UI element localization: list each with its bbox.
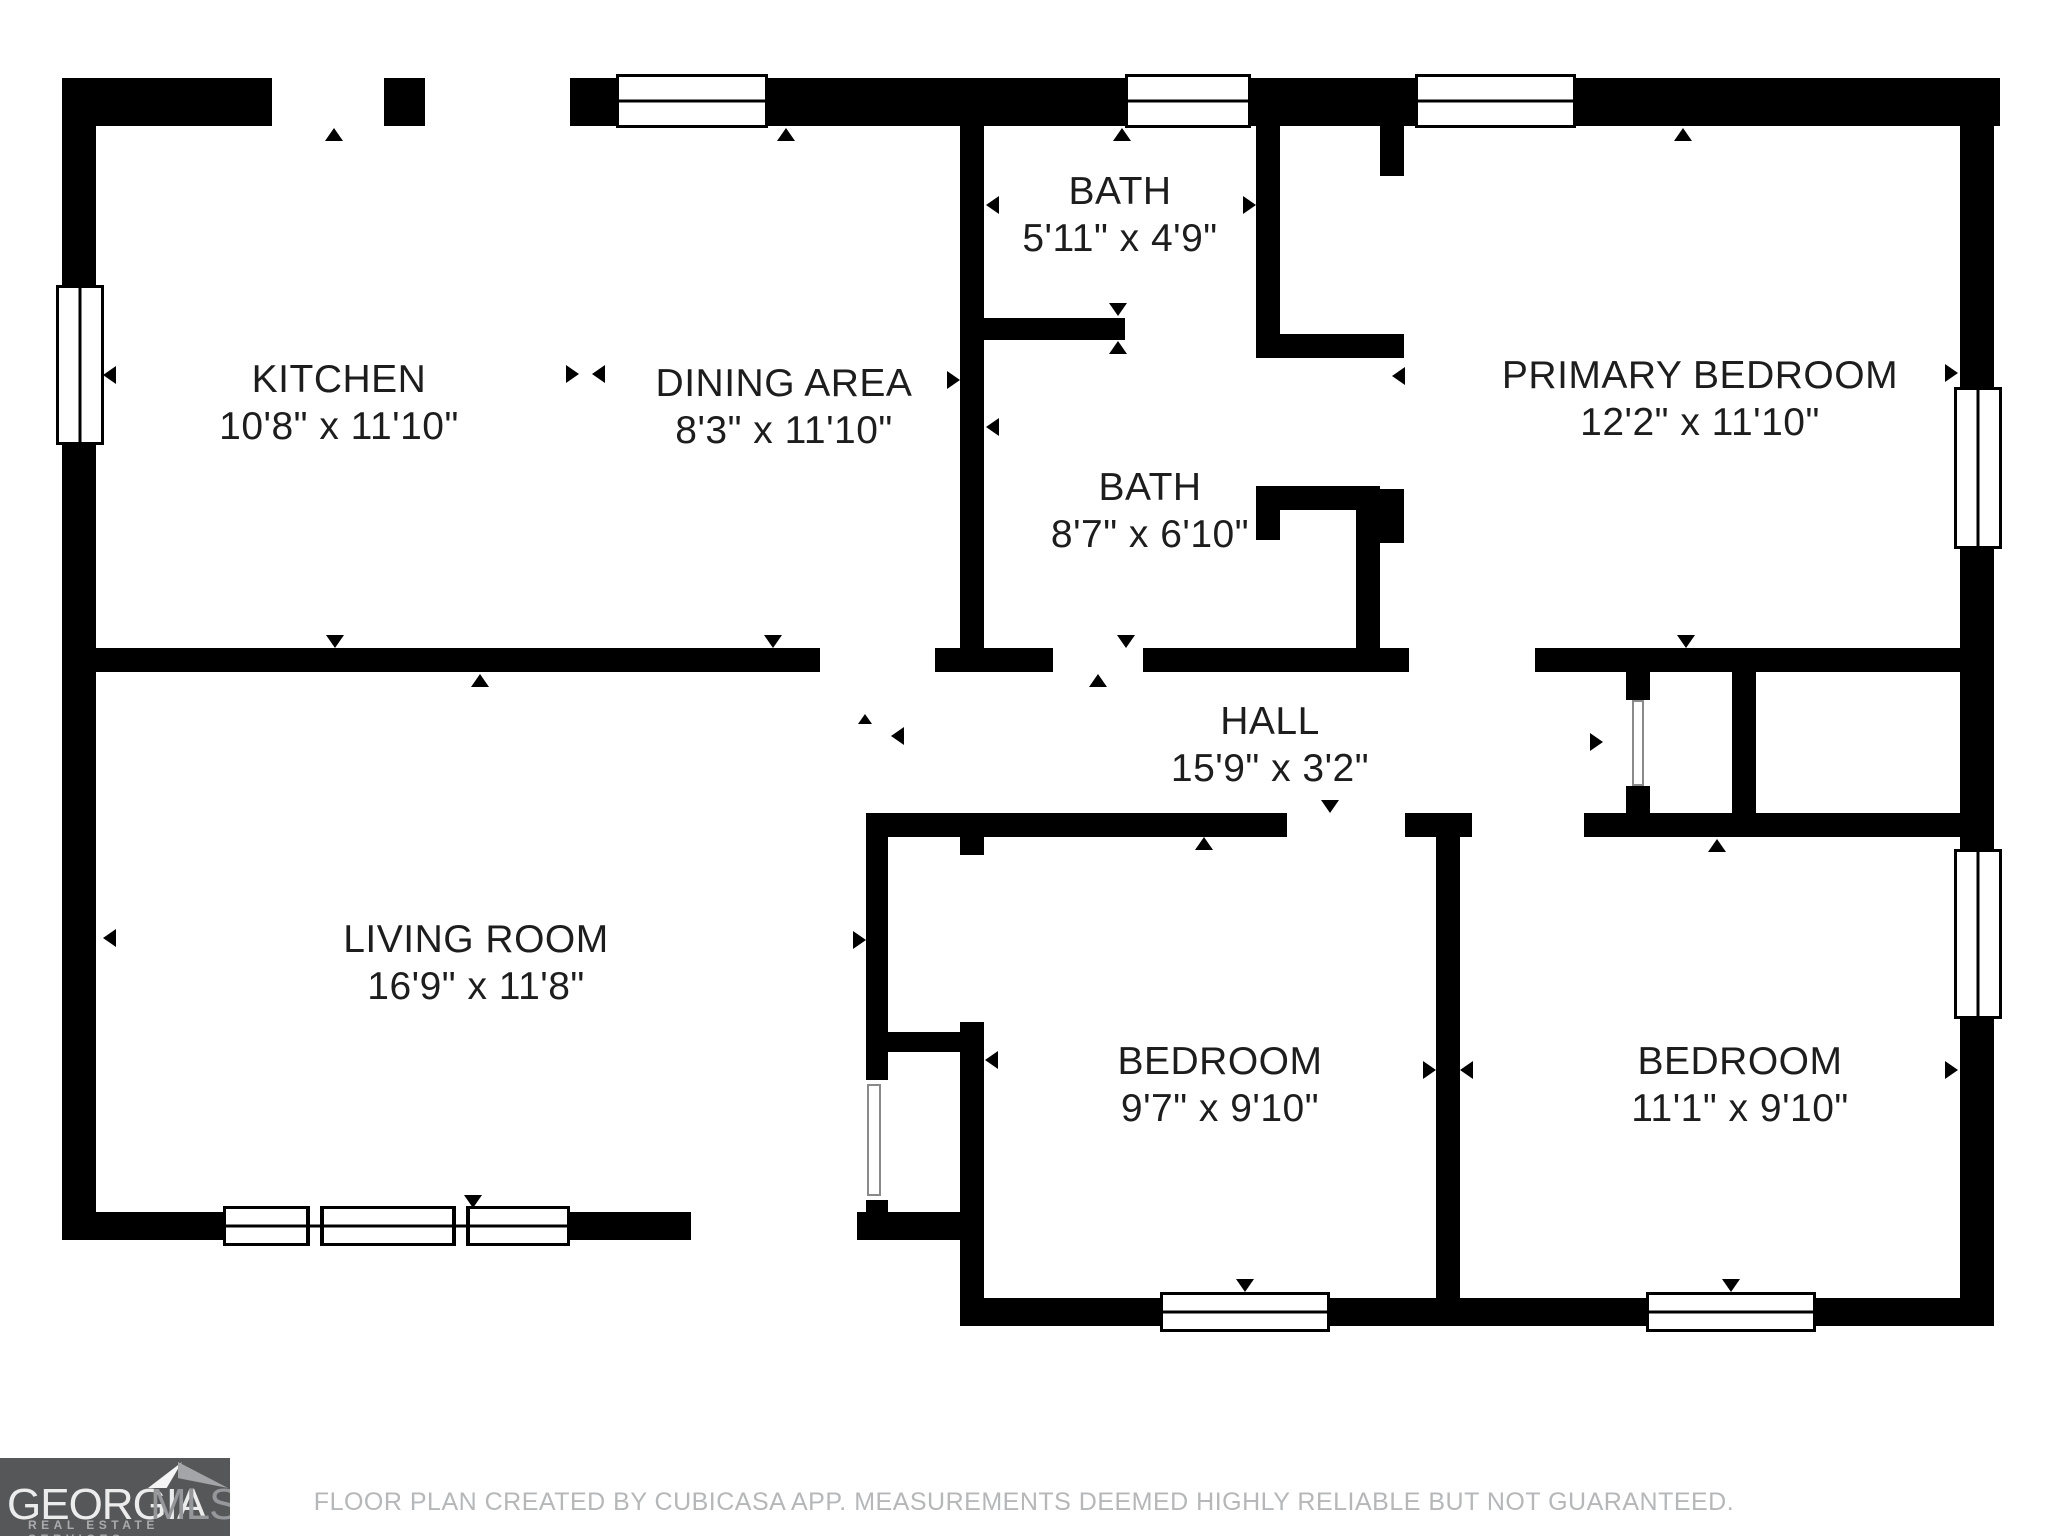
living-room-bottom-wall [62, 1212, 223, 1240]
marker-arrow-icon [1722, 1279, 1740, 1292]
window-primary-top [1415, 74, 1576, 128]
marker-arrow-icon [1392, 367, 1405, 385]
closet-door-leaf [1632, 700, 1644, 786]
room-name: KITCHEN [99, 356, 579, 403]
exterior-wall-left [62, 78, 96, 285]
marker-arrow-icon [1089, 674, 1107, 687]
marker-arrow-icon [891, 727, 904, 745]
door-swing-icon [1109, 303, 1127, 316]
window-mullion [452, 1206, 470, 1246]
closet-wall [1256, 334, 1404, 358]
room-dimensions: 8'7" x 6'10" [910, 511, 1390, 558]
hall-top-wall [984, 648, 1053, 672]
exterior-wall-left [62, 445, 96, 1240]
marker-arrow-icon [764, 635, 782, 648]
exterior-wall-top [384, 78, 425, 126]
marker-arrow-icon [103, 929, 116, 947]
kitchen-bottom-wall [96, 648, 820, 672]
room-label-living-room: LIVING ROOM 16'9" x 11'8" [236, 916, 716, 1010]
bedrooms-top-wall [1405, 813, 1472, 837]
living-room-bottom-wall [570, 1212, 691, 1240]
window-kitchen-top [616, 74, 768, 128]
exterior-wall-top [768, 78, 1125, 126]
door-swing-icon [1321, 800, 1339, 813]
marker-arrow-icon [1945, 364, 1958, 382]
window-bath-top [1125, 74, 1251, 128]
bedrooms-top-wall [866, 813, 1287, 837]
room-name: BATH [880, 168, 1360, 215]
exterior-wall-top [1251, 78, 1415, 126]
room-dimensions: 16'9" x 11'8" [236, 963, 716, 1010]
marker-arrow-icon [464, 1195, 482, 1208]
room-label-bedroom-1: BEDROOM 9'7" x 9'10" [980, 1038, 1460, 1132]
window-mullion [306, 1206, 324, 1246]
closet-door-leaf [867, 1084, 881, 1196]
disclaimer-text: FLOOR PLAN CREATED BY CUBICASA APP. MEAS… [0, 1488, 2048, 1517]
bedrooms-bottom-wall [1330, 1298, 1646, 1326]
bedrooms-bottom-wall [960, 1298, 1160, 1326]
room-label-kitchen: KITCHEN 10'8" x 11'10" [99, 356, 579, 450]
marker-arrow-icon [325, 128, 343, 141]
room-name: BEDROOM [1500, 1038, 1980, 1085]
room-name: BEDROOM [980, 1038, 1460, 1085]
window-bedroom2-bottom [1646, 1292, 1816, 1332]
window-bedroom-right [1954, 849, 2002, 1019]
door-swing-icon [1109, 341, 1127, 354]
window-bedroom1-bottom [1160, 1292, 1330, 1332]
room-name: BATH [910, 464, 1390, 511]
marker-arrow-icon [1708, 839, 1726, 852]
room-name: HALL [1030, 698, 1510, 745]
window-kitchen-left [56, 285, 104, 445]
floor-plan: KITCHEN 10'8" x 11'10" DINING AREA 8'3" … [0, 0, 2048, 1536]
room-label-primary-bedroom: PRIMARY BEDROOM 12'2" x 11'10" [1460, 352, 1940, 446]
exterior-wall-right [1960, 78, 1994, 387]
exterior-wall-top [1576, 78, 2000, 126]
room-label-bedroom-2: BEDROOM 11'1" x 9'10" [1500, 1038, 1980, 1132]
marker-arrow-icon [1674, 128, 1692, 141]
marker-arrow-icon [1117, 635, 1135, 648]
marker-arrow-icon [1677, 635, 1695, 648]
room-dimensions: 11'1" x 9'10" [1500, 1085, 1980, 1132]
marker-arrow-icon [326, 635, 344, 648]
exterior-wall-right [1960, 549, 1994, 849]
room-dimensions: 15'9" x 3'2" [1030, 745, 1510, 792]
vestibule-closet-door-jamb [1626, 672, 1650, 700]
marker-arrow-icon [471, 674, 489, 687]
marker-arrow-icon [1236, 1279, 1254, 1292]
room-name: PRIMARY BEDROOM [1460, 352, 1940, 399]
door-swing-icon [1590, 733, 1603, 751]
window-living-room [223, 1206, 570, 1246]
vestibule-closet-door-jamb [1626, 786, 1650, 813]
room-dimensions: 12'2" x 11'10" [1460, 399, 1940, 446]
room-dimensions: 5'11" x 4'9" [880, 215, 1360, 262]
room-dimensions: 9'7" x 9'10" [980, 1085, 1460, 1132]
room-name: DINING AREA [544, 360, 1024, 407]
hall-top-wall [1143, 648, 1409, 672]
bedroom-closet-wall [960, 837, 984, 855]
marker-arrow-icon [1113, 128, 1131, 141]
room-label-bath-2: BATH 8'7" x 6'10" [910, 464, 1390, 558]
exterior-wall-top [570, 78, 616, 126]
marker-arrow-icon [1195, 837, 1213, 850]
room-dimensions: 8'3" x 11'10" [544, 407, 1024, 454]
bedroom-closet-wall [882, 1032, 984, 1052]
logo-tagline: REAL ESTATE SERVICES [28, 1518, 230, 1536]
room-label-hall: HALL 15'9" x 3'2" [1030, 698, 1510, 792]
room-name: LIVING ROOM [236, 916, 716, 963]
door-swing-icon [858, 714, 872, 724]
georgia-mls-logo: GEORGIA MLS REAL ESTATE SERVICES [0, 1458, 230, 1536]
marker-arrow-icon [853, 931, 866, 949]
bedroom-closet-wall [866, 1200, 888, 1240]
primary-bedroom-left-wall [1380, 126, 1404, 176]
marker-arrow-icon [777, 128, 795, 141]
room-dimensions: 10'8" x 11'10" [99, 403, 579, 450]
room-label-dining-area: DINING AREA 8'3" x 11'10" [544, 360, 1024, 454]
marker-arrow-icon [1460, 1061, 1473, 1079]
bedrooms-top-wall [1584, 813, 1960, 837]
baths-divider-wall [984, 318, 1125, 340]
primary-bedroom-bottom-wall [1535, 648, 1960, 672]
bedrooms-bottom-wall [1816, 1298, 1960, 1326]
room-label-bath-1: BATH 5'11" x 4'9" [880, 168, 1360, 262]
vestibule-closet-wall [1732, 672, 1756, 813]
window-primary-right [1954, 387, 2002, 549]
